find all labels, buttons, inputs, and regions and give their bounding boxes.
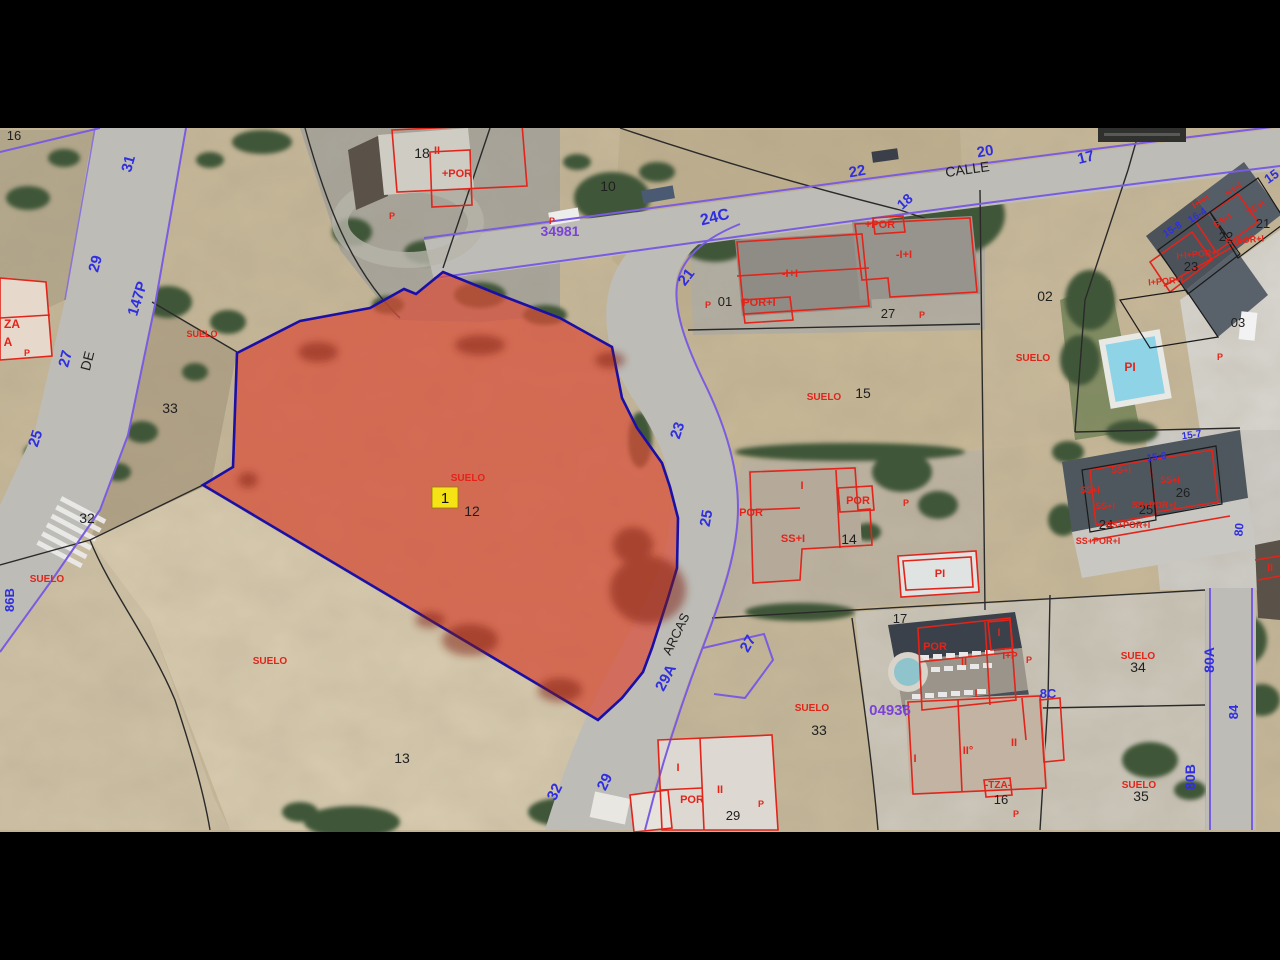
map-text-label: 16 bbox=[994, 792, 1008, 807]
hedge bbox=[745, 603, 855, 621]
tree-canopy bbox=[282, 802, 318, 822]
map-text-label: -I+I bbox=[896, 249, 912, 261]
tree-canopy bbox=[182, 363, 208, 381]
map-text-label: 29 bbox=[726, 808, 740, 823]
map-text-label: 01 bbox=[718, 294, 732, 309]
tree-canopy bbox=[232, 130, 292, 154]
map-text-label: POR bbox=[739, 507, 763, 519]
map-text-label: P bbox=[24, 348, 30, 358]
map-text-label: SS+POR+I bbox=[1132, 500, 1177, 510]
map-text-label: 8C bbox=[1040, 686, 1057, 701]
tree-canopy bbox=[918, 491, 958, 519]
map-text-label: SS+I bbox=[781, 533, 805, 545]
map-text-label: SS+POR+I bbox=[1076, 536, 1121, 546]
tree-canopy bbox=[1106, 420, 1158, 444]
tree-canopy bbox=[196, 152, 224, 168]
map-text-label: SUELO bbox=[451, 473, 486, 484]
tree-canopy bbox=[639, 162, 675, 182]
map-text-label: POR bbox=[923, 641, 947, 653]
map-text-label: 10 bbox=[600, 178, 616, 194]
cadastral-map-canvas[interactable]: 3129147P272586B24C21182220171516-415-815… bbox=[0, 0, 1280, 960]
map-text-label: II bbox=[717, 784, 723, 796]
map-text-label: 23 bbox=[1184, 259, 1198, 274]
building-roof bbox=[658, 735, 778, 830]
map-text-label: 02 bbox=[1037, 288, 1053, 304]
map-text-label: I bbox=[997, 627, 1000, 639]
map-text-label: II bbox=[961, 656, 967, 668]
map-text-label: P bbox=[758, 799, 764, 809]
map-text-label: SUELO bbox=[30, 574, 65, 585]
map-text-label: 22 bbox=[848, 162, 867, 182]
map-text-label: +POR bbox=[442, 168, 472, 180]
map-text-label: 80 bbox=[1231, 522, 1246, 537]
map-text-label: P bbox=[1013, 809, 1019, 819]
tree-canopy bbox=[1122, 742, 1178, 778]
map-text-label: A bbox=[4, 335, 13, 349]
map-text-label: P bbox=[1217, 352, 1223, 362]
map-text-label: I bbox=[974, 688, 977, 700]
map-text-label: 86B bbox=[2, 588, 17, 612]
map-text-label: SUELO bbox=[807, 392, 842, 403]
map-text-label: 13 bbox=[394, 750, 410, 766]
map-text-label: -I+I bbox=[782, 268, 798, 280]
building-roof bbox=[630, 790, 672, 832]
map-text-label: 18 bbox=[414, 145, 430, 161]
map-text-label: P bbox=[1026, 655, 1032, 665]
map-text-label: II bbox=[434, 145, 440, 157]
map-text-label: II bbox=[1267, 562, 1273, 574]
map-text-label: -TZA- bbox=[985, 780, 1011, 791]
map-text-label: 26 bbox=[1176, 485, 1190, 500]
map-text-label: +POR bbox=[865, 219, 895, 231]
round-pool bbox=[894, 658, 922, 686]
map-text-label: SUELO bbox=[186, 329, 217, 339]
map-layers: 3129147P272586B24C21182220171516-415-815… bbox=[0, 124, 1280, 838]
map-text-label: SS+I bbox=[1095, 501, 1115, 511]
map-text-label: SS+POR+I bbox=[1106, 520, 1151, 530]
map-text-label: 15 bbox=[855, 385, 871, 401]
map-text-label: PI bbox=[1124, 360, 1135, 374]
parcel-marker[interactable]: 1 bbox=[432, 487, 458, 508]
map-text-label: I bbox=[800, 480, 803, 492]
parcel-marker-label: 1 bbox=[441, 490, 449, 507]
map-text-label: POR+I bbox=[742, 297, 775, 309]
map-text-label: P bbox=[389, 211, 395, 221]
hedge bbox=[735, 443, 965, 461]
tree-canopy bbox=[6, 186, 50, 210]
map-text-label: SUELO bbox=[253, 656, 288, 667]
map-text-label: P bbox=[549, 216, 555, 226]
map-text-label: P bbox=[919, 310, 925, 320]
map-text-label: II° bbox=[963, 745, 974, 757]
tree-canopy bbox=[872, 452, 932, 492]
map-text-label: P bbox=[903, 498, 909, 508]
map-text-label: 14 bbox=[841, 531, 857, 547]
map-text-label: II bbox=[1011, 737, 1017, 749]
map-text-label: 33 bbox=[162, 400, 178, 416]
map-text-label: SUELO bbox=[795, 703, 830, 714]
map-text-label: 16 bbox=[7, 128, 21, 143]
tree-canopy bbox=[48, 149, 80, 167]
map-text-label: I bbox=[676, 762, 679, 774]
map-text-label: ZA bbox=[4, 317, 20, 331]
map-text-label: 80A bbox=[1201, 647, 1217, 673]
map-text-label: 25 bbox=[697, 509, 717, 528]
screenshot-stage: 3129147P272586B24C21182220171516-415-815… bbox=[0, 0, 1280, 960]
tree-canopy bbox=[563, 154, 591, 170]
map-text-label: I+P bbox=[1002, 651, 1018, 662]
map-text-label: 21 bbox=[1256, 216, 1270, 231]
tree-canopy bbox=[1065, 270, 1115, 330]
map-text-label: POR bbox=[846, 495, 870, 507]
map-tile-label bbox=[1098, 128, 1186, 142]
map-text-label: 04936 bbox=[869, 702, 911, 719]
map-text-label: SS+I bbox=[1080, 485, 1100, 495]
map-text-label: 34981 bbox=[541, 223, 580, 239]
map-text-label: 84 bbox=[1226, 704, 1241, 719]
map-text-label: P bbox=[705, 300, 711, 310]
map-text-label: SUELO bbox=[1016, 353, 1051, 364]
map-text-label: 12 bbox=[464, 503, 480, 519]
map-text-label: SUELO bbox=[1122, 780, 1157, 791]
map-text-label: 33 bbox=[811, 722, 827, 738]
map-text-label: 32 bbox=[79, 510, 95, 526]
map-text-label: SUELO bbox=[1121, 651, 1156, 662]
map-text-label: 17 bbox=[893, 611, 907, 626]
map-text-label: SS+I bbox=[1111, 465, 1131, 475]
map-text-label: SS+I bbox=[1160, 475, 1180, 485]
map-text-label: PI bbox=[935, 568, 945, 580]
map-text-label: 80B bbox=[1182, 764, 1198, 790]
map-text-label: 03 bbox=[1231, 315, 1245, 330]
map-text-label: 27 bbox=[881, 306, 895, 321]
map-text-label: POR bbox=[680, 794, 704, 806]
map-text-label: I bbox=[913, 753, 916, 765]
